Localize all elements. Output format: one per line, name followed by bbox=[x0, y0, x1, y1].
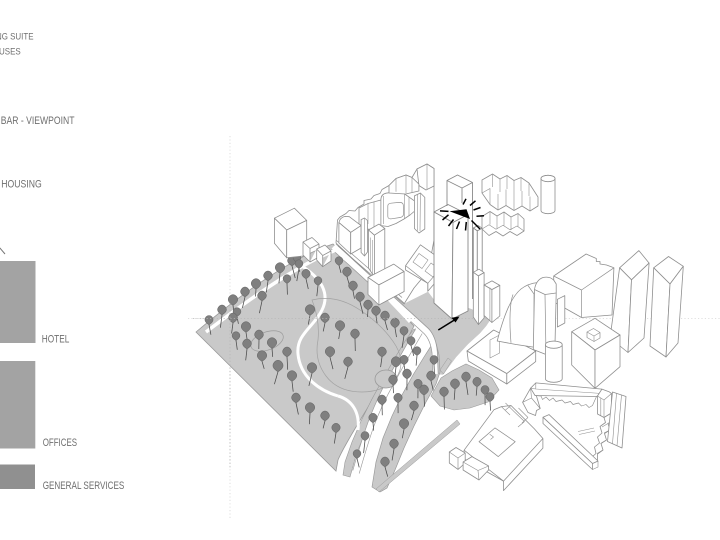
svg-text:GENERAL SERVICES: GENERAL SERVICES bbox=[43, 480, 125, 492]
svg-text:HOTEL: HOTEL bbox=[42, 334, 70, 346]
svg-text:USES: USES bbox=[0, 47, 21, 57]
svg-text:NG SUITE: NG SUITE bbox=[0, 32, 34, 42]
svg-text:HOUSING: HOUSING bbox=[1, 179, 41, 191]
svg-text:OFFICES: OFFICES bbox=[43, 437, 77, 449]
svg-text:BAR - VIEWPOINT: BAR - VIEWPOINT bbox=[1, 115, 75, 127]
